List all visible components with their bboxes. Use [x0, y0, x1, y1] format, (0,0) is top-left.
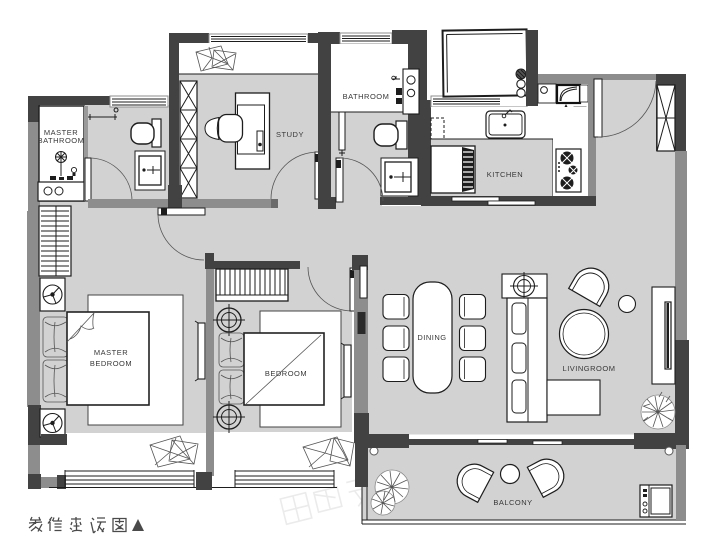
- svg-text:BEDROOM: BEDROOM: [90, 359, 132, 368]
- svg-text:BALCONY: BALCONY: [493, 498, 532, 507]
- svg-text:MASTER: MASTER: [94, 348, 128, 357]
- svg-text:STUDY: STUDY: [276, 130, 304, 139]
- svg-text:LIVINGROOM: LIVINGROOM: [563, 364, 616, 373]
- svg-text:BEDROOM: BEDROOM: [265, 369, 307, 378]
- svg-text:DINING: DINING: [417, 333, 446, 342]
- svg-text:BATHROOM: BATHROOM: [38, 136, 85, 145]
- svg-text:KITCHEN: KITCHEN: [487, 170, 523, 179]
- svg-text:BATHROOM: BATHROOM: [343, 92, 390, 101]
